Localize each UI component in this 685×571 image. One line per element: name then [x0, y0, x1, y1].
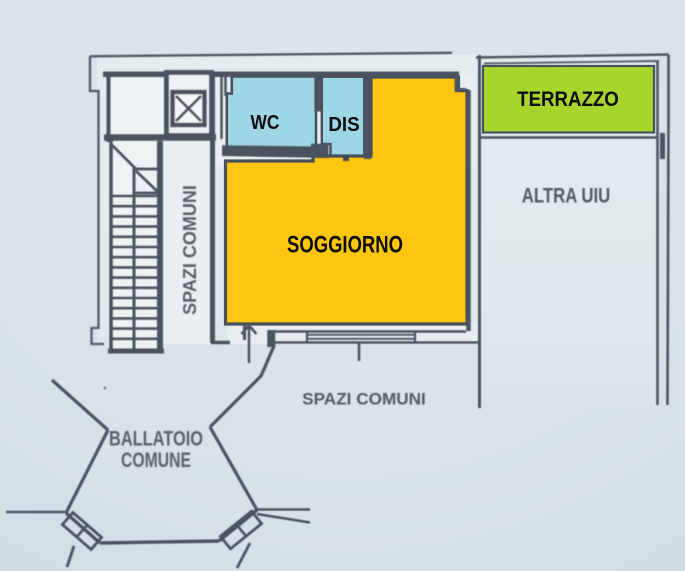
- svg-text:SPAZI COMUNI: SPAZI COMUNI: [180, 185, 200, 315]
- svg-text:BALLATOIO: BALLATOIO: [109, 427, 203, 450]
- svg-text:SPAZI COMUNI: SPAZI COMUNI: [302, 390, 426, 409]
- svg-text:ALTRA UIU: ALTRA UIU: [522, 185, 611, 208]
- svg-text:SOGGIORNO: SOGGIORNO: [287, 231, 403, 258]
- svg-text:COMUNE: COMUNE: [121, 448, 191, 472]
- svg-text:WC: WC: [251, 111, 280, 133]
- svg-text:TERRAZZO: TERRAZZO: [517, 88, 619, 111]
- svg-text:DIS: DIS: [328, 113, 359, 136]
